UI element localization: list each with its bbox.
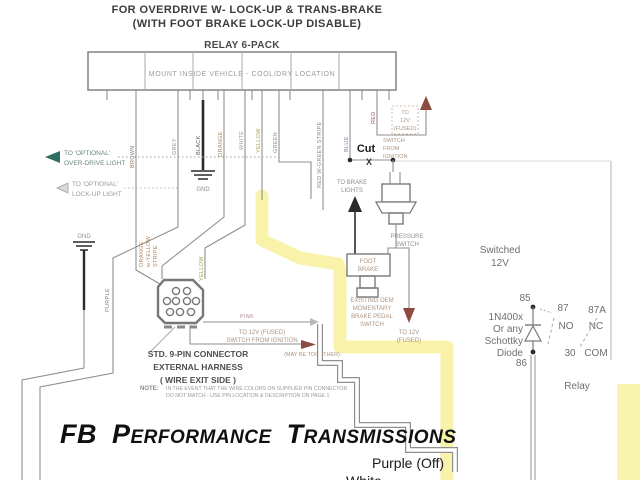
- overdrive-label-1: TO 'OPTIONAL': [64, 150, 110, 157]
- label-grey: GREY: [172, 138, 178, 155]
- relay-label: Relay: [564, 381, 590, 392]
- switch-ign-s1: SWITCH: [383, 138, 405, 144]
- oem-switch-l3: BRAKE PEDAL: [351, 314, 393, 320]
- pressure-switch-l1: PRESSURE: [390, 234, 423, 240]
- label-blue: BLUE: [344, 136, 350, 152]
- oem-switch-l2: MOMENTARY: [353, 306, 391, 312]
- fused-12v-l2: 12V: [400, 118, 410, 124]
- label-orange-stripe-2: w-YELLOW: [146, 235, 152, 268]
- diode-icon: [525, 326, 541, 341]
- brake-lights-output: TO BRAKE LIGHTS: [337, 180, 367, 254]
- label-black: BLACK: [196, 135, 202, 155]
- connector-callout-l2: EXTERNAL HARNESS: [153, 362, 243, 372]
- pin-86-label: 86: [516, 358, 528, 369]
- pressure-switch-stem: [389, 213, 403, 224]
- wiring-diagram: FOR OVERDRIVE W- LOCK-UP & TRANS-BRAKE (…: [0, 0, 640, 480]
- right-arrow-icon: [301, 340, 316, 349]
- pin-30-label: 30: [564, 348, 576, 359]
- pin-87-label: 87: [557, 303, 569, 314]
- pin-86-dot: [531, 350, 536, 355]
- pin-87a-label: 87A: [588, 305, 606, 316]
- foot-brake-pedal-stem: [360, 276, 375, 288]
- wiring-diagram-page: FOR OVERDRIVE W- LOCK-UP & TRANS-BRAKE (…: [0, 0, 640, 480]
- diode-l1: 1N400x: [489, 312, 523, 323]
- foot-brake-switch: FOOT BRAKE EXISTING OEM MOMENTARY BRAKE …: [347, 254, 394, 328]
- note-prefix: NOTE:: [140, 386, 159, 392]
- label-red-green-stripe: RED W-GREEN STRIPE: [317, 122, 323, 188]
- no-label: NO: [559, 321, 574, 332]
- down-12v-l1: TO 12V: [399, 330, 420, 336]
- oem-switch-l1: EXISTING OEM: [350, 298, 393, 304]
- diode-l3: Schottky: [485, 336, 523, 347]
- page-title: FOR OVERDRIVE W- LOCK-UP & TRANS-BRAKE (…: [112, 4, 383, 30]
- brake-lights-l1: TO BRAKE: [337, 180, 367, 186]
- pressure-switch-leads: [390, 160, 400, 184]
- ignition-feed-top: TO 12V (FUSED) SWITCH FROM IGNITION: [383, 96, 432, 160]
- pin-85-label: 85: [519, 293, 531, 304]
- pressure-switch-body: [382, 184, 410, 202]
- foot-brake-pedal-pad: [357, 288, 378, 297]
- up-arrow-icon: [420, 96, 432, 110]
- com-label: COM: [584, 348, 607, 359]
- lockup-label-2: LOCK-UP LIGHT: [72, 191, 122, 198]
- nine-pin-connector: STD. 9-PIN CONNECTOR EXTERNAL HARNESS ( …: [148, 280, 248, 385]
- label-orange: ORANGE: [218, 131, 224, 157]
- clipped-bottom-label: White: [346, 473, 382, 480]
- note-l1: IN THE EVENT THAT THE WIRE COLORS ON SUP…: [166, 386, 347, 392]
- gnd-left-label: GND: [77, 234, 91, 240]
- optional-outputs: TO 'OPTIONAL' OVER-DRIVE LIGHT TO 'OPTIO…: [45, 150, 279, 198]
- relay-pack-pins: [107, 90, 389, 100]
- relay-6-pack: RELAY 6-PACK MOUNT INSIDE VEHICLE - COOL…: [88, 40, 396, 100]
- relay-pack-title: RELAY 6-PACK: [204, 40, 280, 51]
- relay-section: Switched 12V 85 86 1N400x Or any Schottk…: [480, 245, 608, 480]
- title-line2: (WITH FOOT BRAKE LOCK-UP DISABLE): [133, 18, 362, 30]
- fused-12v-l1: TO: [401, 110, 409, 116]
- cut-label: Cut: [357, 143, 376, 155]
- label-purple: PURPLE: [105, 288, 111, 312]
- diode-l4: Diode: [497, 348, 524, 359]
- down-12v-l2: (FUSED): [397, 338, 421, 344]
- overdrive-arrow-icon: [45, 151, 60, 163]
- nc-label: NC: [589, 321, 603, 332]
- label-orange-stripe-1: ORANGE: [139, 241, 145, 267]
- label-yellow2: YELLOW: [199, 256, 205, 281]
- relay-dashed-link: [540, 309, 552, 313]
- pink-feed-l2: SWITCH FROM IGNITION: [226, 338, 297, 344]
- brake-lights-l2: LIGHTS: [341, 188, 363, 194]
- note-l2: DO NOT MATCH - USE PIN LOCATION & DESCRI…: [166, 393, 329, 399]
- connector-callout-l1: STD. 9-PIN CONNECTOR: [148, 349, 248, 359]
- label-yellow: YELLOW: [256, 128, 262, 153]
- up-arrow-icon: [348, 196, 362, 212]
- highlight-right-strip: [617, 384, 640, 480]
- cut-x-mark: X: [366, 157, 372, 167]
- pressure-switch: PRESSURE SWITCH: [376, 160, 424, 248]
- relay-contact-dash-no: [548, 318, 554, 344]
- fused-12v-l3: (FUSED): [394, 126, 416, 132]
- note-block: NOTE: IN THE EVENT THAT THE WIRE COLORS …: [140, 386, 347, 399]
- switch-ign-s2: FROM: [383, 146, 400, 152]
- pressure-switch-l2: SWITCH: [395, 242, 419, 248]
- switched-12v-l2: 12V: [491, 258, 509, 269]
- oem-switch-l4: SWITCH: [360, 322, 384, 328]
- down-arrow-icon: [403, 308, 415, 323]
- foot-brake-l2: BRAKE: [358, 267, 378, 273]
- label-red: RED: [371, 111, 377, 124]
- ground-symbol-icon: [73, 242, 95, 250]
- wire-white: [205, 100, 245, 279]
- label-orange-stripe-3: STRIPE: [153, 245, 159, 267]
- wire-green: [279, 100, 311, 199]
- pink-feed-l1: TO 12V (FUSED): [239, 330, 286, 336]
- wire-orange: [162, 100, 224, 279]
- switched-12v-l1: Switched: [480, 245, 521, 256]
- may-be-together-label: (MAY BE TOGETHER): [284, 352, 340, 358]
- ground-center: GND: [191, 171, 215, 193]
- brand-wordmark: FB Performance Transmissions: [60, 419, 460, 450]
- junction-dot: [348, 158, 353, 163]
- label-pink: PINK: [240, 314, 254, 320]
- purple-off-label: Purple (Off): [372, 455, 444, 471]
- lockup-label-1: TO 'OPTIONAL': [72, 181, 118, 188]
- lockup-arrow-icon: [57, 183, 68, 193]
- gnd-center-label: GND: [196, 187, 210, 193]
- overdrive-label-2: OVER-DRIVE LIGHT: [64, 160, 125, 167]
- connector-callout-l3: ( WIRE EXIT SIDE ): [160, 375, 236, 385]
- diode-l2: Or any: [493, 324, 523, 335]
- ground-symbol-icon: [191, 171, 215, 179]
- label-green: GREEN: [273, 132, 279, 153]
- label-white: WHITE: [239, 131, 245, 150]
- title-line1: FOR OVERDRIVE W- LOCK-UP & TRANS-BRAKE: [112, 4, 383, 16]
- footer-labels: Purple (Off) White: [346, 455, 444, 480]
- ground-wire-run: [22, 310, 84, 480]
- pressure-switch-flange: [376, 202, 416, 213]
- switch-ign-s3: IGNITION: [383, 154, 407, 160]
- relay-pack-mount-note: MOUNT INSIDE VEHICLE - COOL/DRY LOCATION: [149, 71, 335, 78]
- foot-brake-l1: FOOT: [360, 259, 377, 265]
